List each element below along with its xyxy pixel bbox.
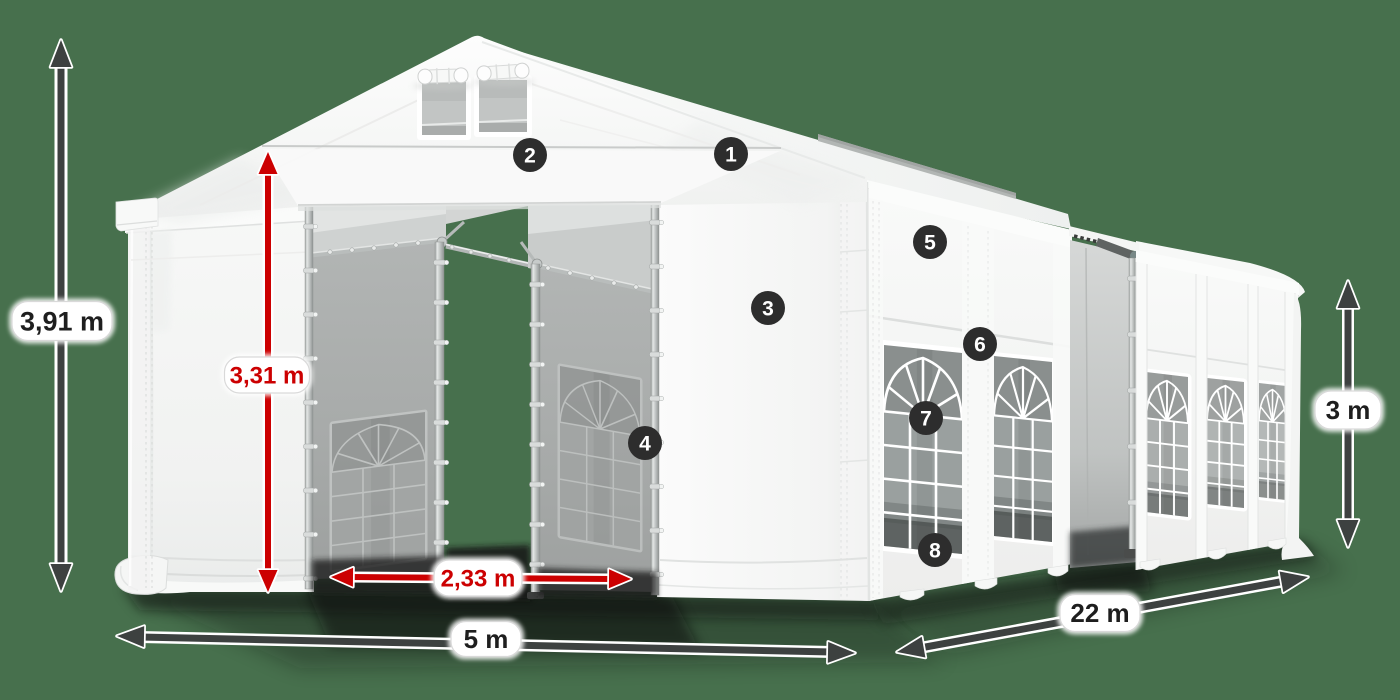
svg-text:2: 2 bbox=[524, 144, 536, 167]
svg-text:7: 7 bbox=[920, 407, 932, 430]
svg-text:3,31 m: 3,31 m bbox=[230, 362, 305, 389]
svg-text:3 m: 3 m bbox=[1326, 395, 1371, 425]
svg-text:3: 3 bbox=[762, 297, 774, 320]
svg-text:6: 6 bbox=[974, 333, 986, 356]
svg-text:5: 5 bbox=[924, 231, 936, 254]
svg-text:3,91 m: 3,91 m bbox=[20, 306, 104, 336]
svg-text:4: 4 bbox=[639, 432, 651, 455]
svg-text:1: 1 bbox=[725, 143, 737, 166]
svg-text:22 m: 22 m bbox=[1070, 598, 1129, 628]
svg-text:5 m: 5 m bbox=[464, 624, 509, 654]
svg-text:2,33 m: 2,33 m bbox=[441, 565, 516, 592]
svg-text:8: 8 bbox=[929, 539, 941, 562]
